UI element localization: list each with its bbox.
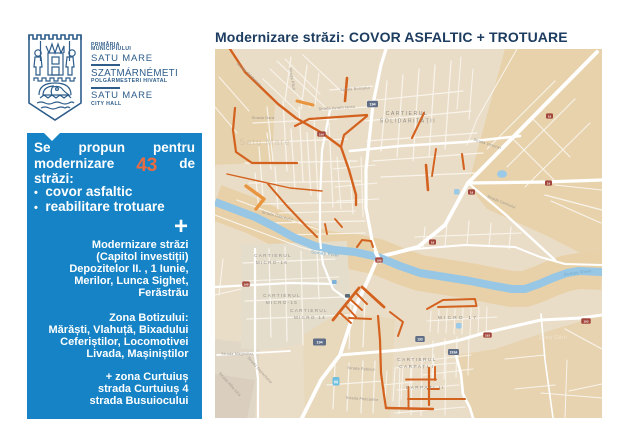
svg-text:CARTIERUL: CARTIERUL [254, 253, 292, 258]
svg-text:CARTIERUL: CARTIERUL [386, 111, 429, 117]
svg-text:19: 19 [547, 181, 551, 185]
svg-text:193: 193 [583, 319, 588, 323]
svg-text:198: 198 [376, 258, 381, 262]
svg-text:194: 194 [316, 340, 323, 344]
svg-text:Satu Mare: Satu Mare [239, 137, 290, 147]
svg-text:198: 198 [243, 282, 248, 286]
svg-text:CARPAȚI I: CARPAȚI I [399, 364, 435, 370]
svg-text:Strada Magnoliei: Strada Magnoliei [221, 352, 253, 356]
svg-text:MICRO 17: MICRO 17 [438, 315, 478, 321]
svg-text:194: 194 [369, 102, 376, 106]
svg-text:19: 19 [431, 240, 435, 244]
svg-text:MICRO-15: MICRO-15 [266, 300, 298, 305]
svg-text:SOLIDARITĂȚII: SOLIDARITĂȚII [380, 118, 436, 125]
svg-text:19: 19 [470, 190, 474, 194]
svg-text:CARTIERUL: CARTIERUL [290, 308, 328, 313]
svg-text:M: M [334, 380, 338, 385]
svg-text:19A: 19A [319, 132, 324, 136]
svg-text:193A: 193A [450, 350, 459, 354]
svg-text:193: 193 [485, 333, 490, 337]
svg-text:MICRO 14: MICRO 14 [294, 315, 326, 320]
svg-text:CARPAȚI II: CARPAȚI II [406, 385, 444, 391]
svg-text:193: 193 [417, 337, 423, 341]
svg-text:CARTIERUL: CARTIERUL [263, 293, 301, 298]
svg-text:MICRO-16: MICRO-16 [256, 260, 288, 265]
svg-text:CARTIERUL: CARTIERUL [397, 357, 437, 363]
svg-text:19: 19 [548, 114, 552, 118]
svg-text:Strada Dara: Strada Dara [252, 116, 275, 120]
svg-text:Zona Gării: Zona Gării [539, 335, 567, 341]
